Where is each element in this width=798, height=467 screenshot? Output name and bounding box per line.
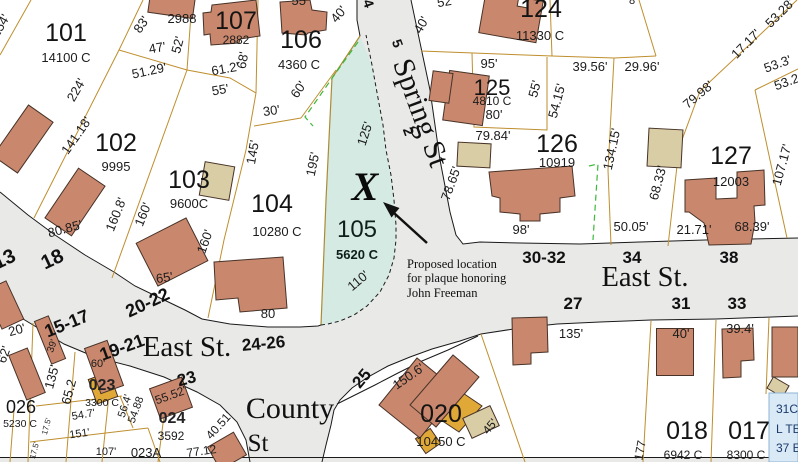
svg-text:2988: 2988 [168, 11, 197, 26]
svg-text:47': 47' [148, 39, 167, 57]
svg-text:11330 C: 11330 C [516, 28, 564, 43]
svg-text:3592: 3592 [158, 429, 185, 443]
svg-text:55': 55' [292, 0, 309, 8]
svg-text:30': 30' [262, 102, 281, 119]
svg-text:105: 105 [337, 216, 377, 243]
svg-text:026: 026 [6, 397, 36, 417]
svg-text:127: 127 [710, 142, 752, 170]
svg-text:126: 126 [536, 130, 578, 158]
svg-text:023A: 023A [131, 445, 162, 460]
svg-text:9600C: 9600C [170, 196, 208, 211]
svg-text:40': 40' [673, 326, 690, 341]
svg-text:X: X [350, 164, 380, 209]
svg-text:95': 95' [481, 56, 498, 71]
svg-text:14100 C: 14100 C [41, 50, 90, 65]
svg-text:12003: 12003 [713, 174, 749, 189]
svg-text:L TE: L TE [776, 422, 798, 436]
svg-text:31: 31 [672, 294, 691, 313]
svg-text:102: 102 [95, 129, 137, 157]
svg-text:135': 135' [559, 326, 583, 341]
svg-text:County: County [246, 392, 334, 425]
svg-text:Proposed location: Proposed location [407, 257, 498, 271]
svg-text:38: 38 [720, 248, 739, 267]
svg-text:John Freeman: John Freeman [407, 286, 478, 300]
svg-text:107': 107' [96, 446, 116, 458]
svg-text:8: 8 [629, 0, 635, 7]
svg-text:8300 C: 8300 C [727, 448, 766, 462]
svg-text:80': 80' [486, 107, 503, 122]
svg-text:St: St [248, 430, 269, 457]
svg-text:79.84': 79.84' [475, 128, 510, 143]
svg-text:020: 020 [420, 400, 462, 428]
svg-text:68': 68' [234, 51, 252, 70]
svg-text:39.56': 39.56' [572, 59, 607, 74]
svg-text:31C: 31C [776, 402, 798, 416]
svg-text:101: 101 [45, 19, 87, 47]
svg-text:80: 80 [261, 306, 275, 321]
svg-text:2882: 2882 [223, 33, 250, 47]
svg-text:6942 C: 6942 C [664, 448, 703, 462]
svg-text:10450 C: 10450 C [416, 434, 465, 449]
svg-text:50.05': 50.05' [613, 219, 648, 234]
svg-text:for plaque honoring: for plaque honoring [407, 271, 507, 285]
svg-text:124: 124 [520, 0, 562, 23]
svg-text:4360 C: 4360 C [278, 57, 320, 72]
svg-text:East St.: East St. [601, 262, 688, 293]
svg-text:106: 106 [280, 26, 322, 54]
svg-text:018: 018 [666, 417, 708, 445]
svg-text:29.96': 29.96' [624, 59, 659, 74]
svg-text:37 E: 37 E [776, 441, 798, 455]
svg-text:10919: 10919 [539, 155, 575, 170]
svg-text:9995: 9995 [102, 159, 131, 174]
svg-text:34: 34 [623, 248, 642, 267]
svg-text:60': 60' [91, 358, 105, 370]
svg-text:107: 107 [215, 7, 257, 35]
svg-text:55': 55' [211, 81, 230, 99]
svg-text:4810 C: 4810 C [473, 94, 512, 108]
svg-text:024: 024 [159, 410, 186, 427]
svg-text:10280 C: 10280 C [252, 224, 301, 239]
svg-text:39.4': 39.4' [726, 321, 754, 336]
svg-text:98': 98' [513, 222, 530, 237]
svg-text:33: 33 [728, 294, 747, 313]
svg-text:017: 017 [728, 417, 770, 445]
svg-text:27: 27 [564, 294, 583, 313]
svg-text:24-26: 24-26 [241, 332, 286, 355]
svg-text:30-32: 30-32 [522, 248, 565, 267]
svg-text:21.71': 21.71' [676, 222, 711, 237]
svg-text:5230 C: 5230 C [3, 418, 37, 430]
svg-text:104: 104 [251, 190, 293, 218]
svg-text:68.39': 68.39' [734, 219, 769, 234]
svg-text:023: 023 [89, 377, 116, 394]
svg-text:65': 65' [155, 269, 174, 286]
svg-text:103: 103 [168, 166, 210, 194]
svg-text:5620 C: 5620 C [336, 247, 379, 262]
svg-text:East St.: East St. [143, 331, 232, 363]
